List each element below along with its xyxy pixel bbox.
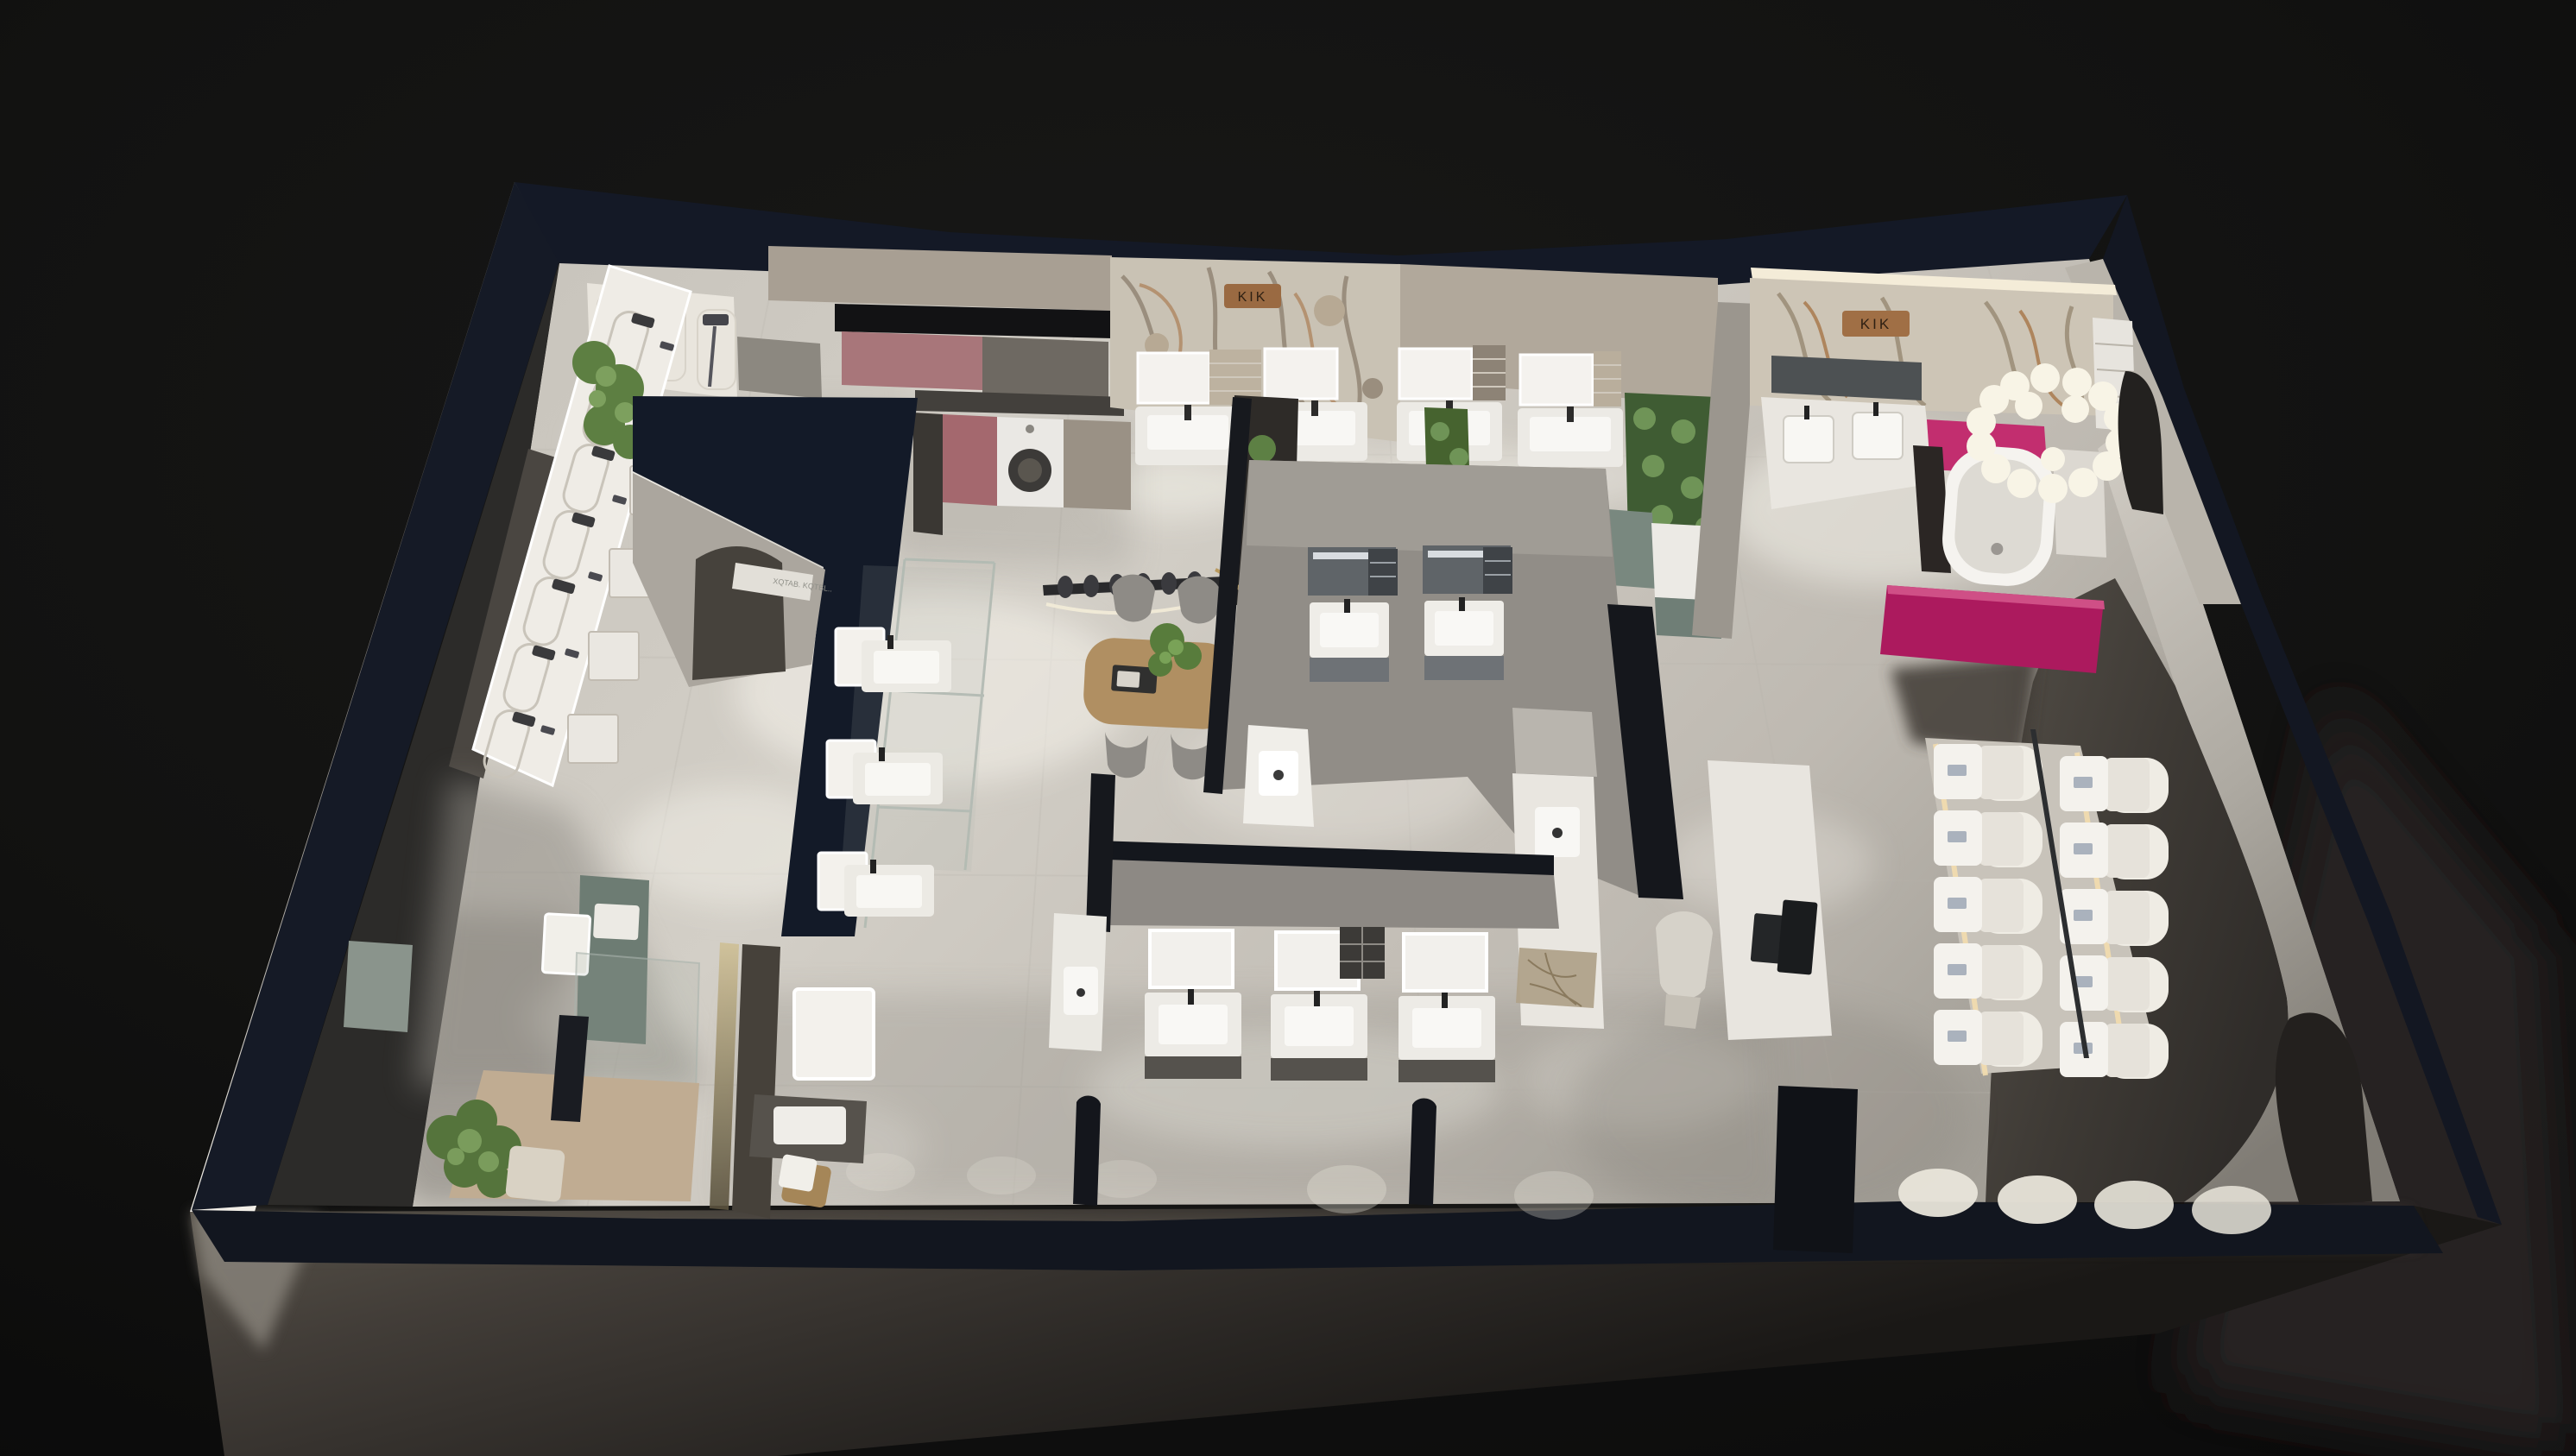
svg-text:KIK: KIK [1238, 290, 1268, 305]
svg-text:KIK: KIK [1860, 316, 1891, 332]
